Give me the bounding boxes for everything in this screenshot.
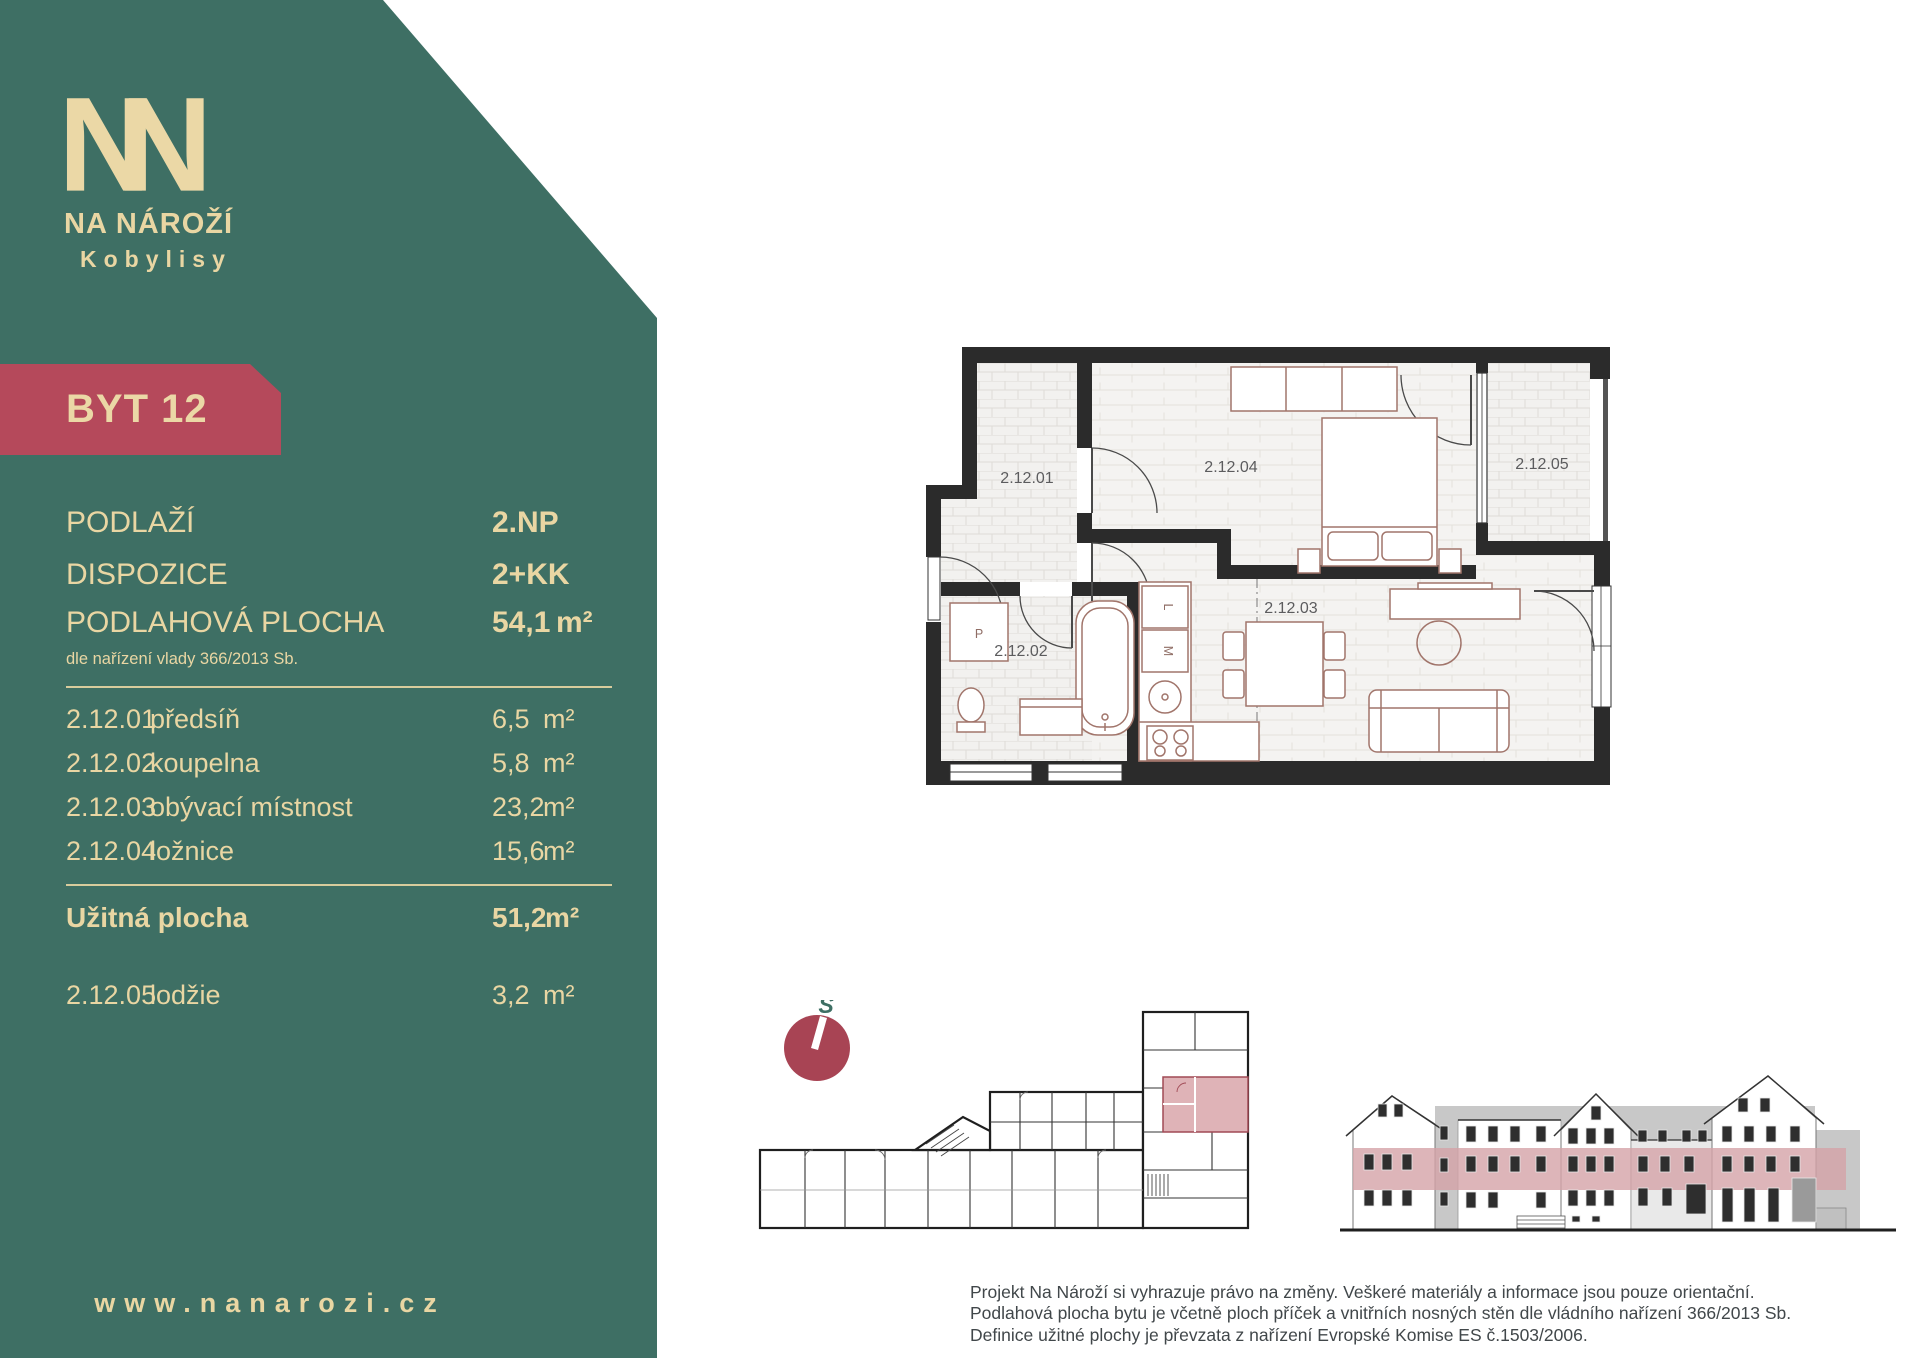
disclaimer-line: Definice užitné plochy je převzata z nař… (970, 1325, 1791, 1346)
divider-line (66, 686, 612, 688)
apartment-floorplan: 2.12.01 2.12.02 2.12.03 2.12.04 2.12.05 … (920, 345, 1620, 785)
room-code: 2.12.05 (66, 980, 156, 1011)
brand-logo-monogram: N N (58, 82, 216, 204)
room-area: 23,2 (492, 792, 545, 823)
unit-badge-label: BYT 12 (66, 364, 208, 455)
sidebar: N N NA NÁROŽÍ Kobylisy BYT 12 PODLAŽÍ 2.… (0, 0, 657, 1358)
summary-row-layout: DISPOZICE 2+KK (0, 558, 657, 596)
highlighted-unit (1163, 1077, 1248, 1132)
room-code: 2.12.01 (66, 704, 156, 735)
room-name: koupelna (150, 748, 260, 779)
room-unit: m² (543, 792, 574, 823)
disclaimer-line: Projekt Na Nároží si vyhrazuje právo na … (970, 1282, 1791, 1303)
loggia-railing (1603, 379, 1608, 541)
label-bathroom: 2.12.02 (994, 643, 1047, 660)
room-name: předsíň (150, 704, 240, 735)
room-unit: m² (543, 980, 574, 1011)
summary-unit: m² (556, 606, 593, 640)
room-row: 2.12.03 obývací místnost 23,2 m² (0, 792, 657, 830)
disclaimer-line: Podlahová plocha bytu je včetně ploch př… (970, 1303, 1791, 1324)
disclaimer: Projekt Na Nároží si vyhrazuje právo na … (970, 1282, 1791, 1346)
summary-label: PODLAŽÍ (66, 506, 194, 540)
summary-row-area: PODLAHOVÁ PLOCHA 54,1 m² (0, 606, 657, 644)
room-row: 2.12.02 koupelna 5,8 m² (0, 748, 657, 786)
loggia-glazed-wall (1477, 373, 1487, 523)
total-label: Užitná plocha (66, 902, 248, 934)
room-area: 6,5 (492, 704, 530, 735)
room-area: 15,6 (492, 836, 545, 867)
french-window (1592, 586, 1611, 707)
summary-label: PODLAHOVÁ PLOCHA (66, 606, 384, 640)
room-row: 2.12.01 předsíň 6,5 m² (0, 704, 657, 742)
compass: S (784, 1000, 850, 1081)
divider-line (66, 884, 612, 886)
regulation-note: dle nařízení vlady 366/2013 Sb. (66, 650, 298, 669)
room-area: 3,2 (492, 980, 530, 1011)
label-hall: 2.12.01 (1000, 470, 1053, 487)
entrance-door-leaf (928, 557, 940, 620)
brand-location: Kobylisy (80, 246, 232, 273)
label-washer: P (975, 627, 983, 641)
building-overview-plan: S (750, 1000, 1262, 1245)
total-area: 51,2 (492, 902, 547, 934)
room-code: 2.12.02 (66, 748, 156, 779)
summary-value: 54,1 (492, 606, 550, 640)
label-dishwasher: M (1161, 646, 1175, 656)
label-bedroom: 2.12.04 (1204, 459, 1257, 476)
label-loggia: 2.12.05 (1515, 456, 1568, 473)
summary-value: 2.NP (492, 506, 559, 540)
unit-badge: BYT 12 (0, 364, 281, 455)
room-code: 2.12.03 (66, 792, 156, 823)
brand-name: NA NÁROŽÍ (64, 208, 233, 241)
room-code: 2.12.04 (66, 836, 156, 867)
total-area-row: Užitná plocha 51,2 m² (0, 902, 657, 940)
total-unit: m² (545, 902, 579, 934)
room-unit: m² (543, 704, 574, 735)
summary-row-floor: PODLAŽÍ 2.NP (0, 506, 657, 544)
brochure-page: N N NA NÁROŽÍ Kobylisy BYT 12 PODLAŽÍ 2.… (0, 0, 1920, 1358)
label-fridge: L (1161, 604, 1175, 611)
room-name: lodžie (150, 980, 221, 1011)
room-area: 5,8 (492, 748, 530, 779)
room-row: 2.12.04 ložnice 15,6 m² (0, 836, 657, 874)
website-link[interactable]: www.nanarozi.cz (0, 1288, 540, 1319)
label-living-room: 2.12.03 (1264, 600, 1317, 617)
room-unit: m² (543, 748, 574, 779)
summary-value: 2+KK (492, 558, 570, 592)
logo-n-right: N (116, 82, 213, 204)
room-name: obývací místnost (150, 792, 353, 823)
room-unit: m² (543, 836, 574, 867)
room-row-loggia: 2.12.05 lodžie 3,2 m² (0, 980, 657, 1018)
summary-label: DISPOZICE (66, 558, 228, 592)
room-name: ložnice (150, 836, 234, 867)
building-elevation (1340, 1070, 1900, 1240)
